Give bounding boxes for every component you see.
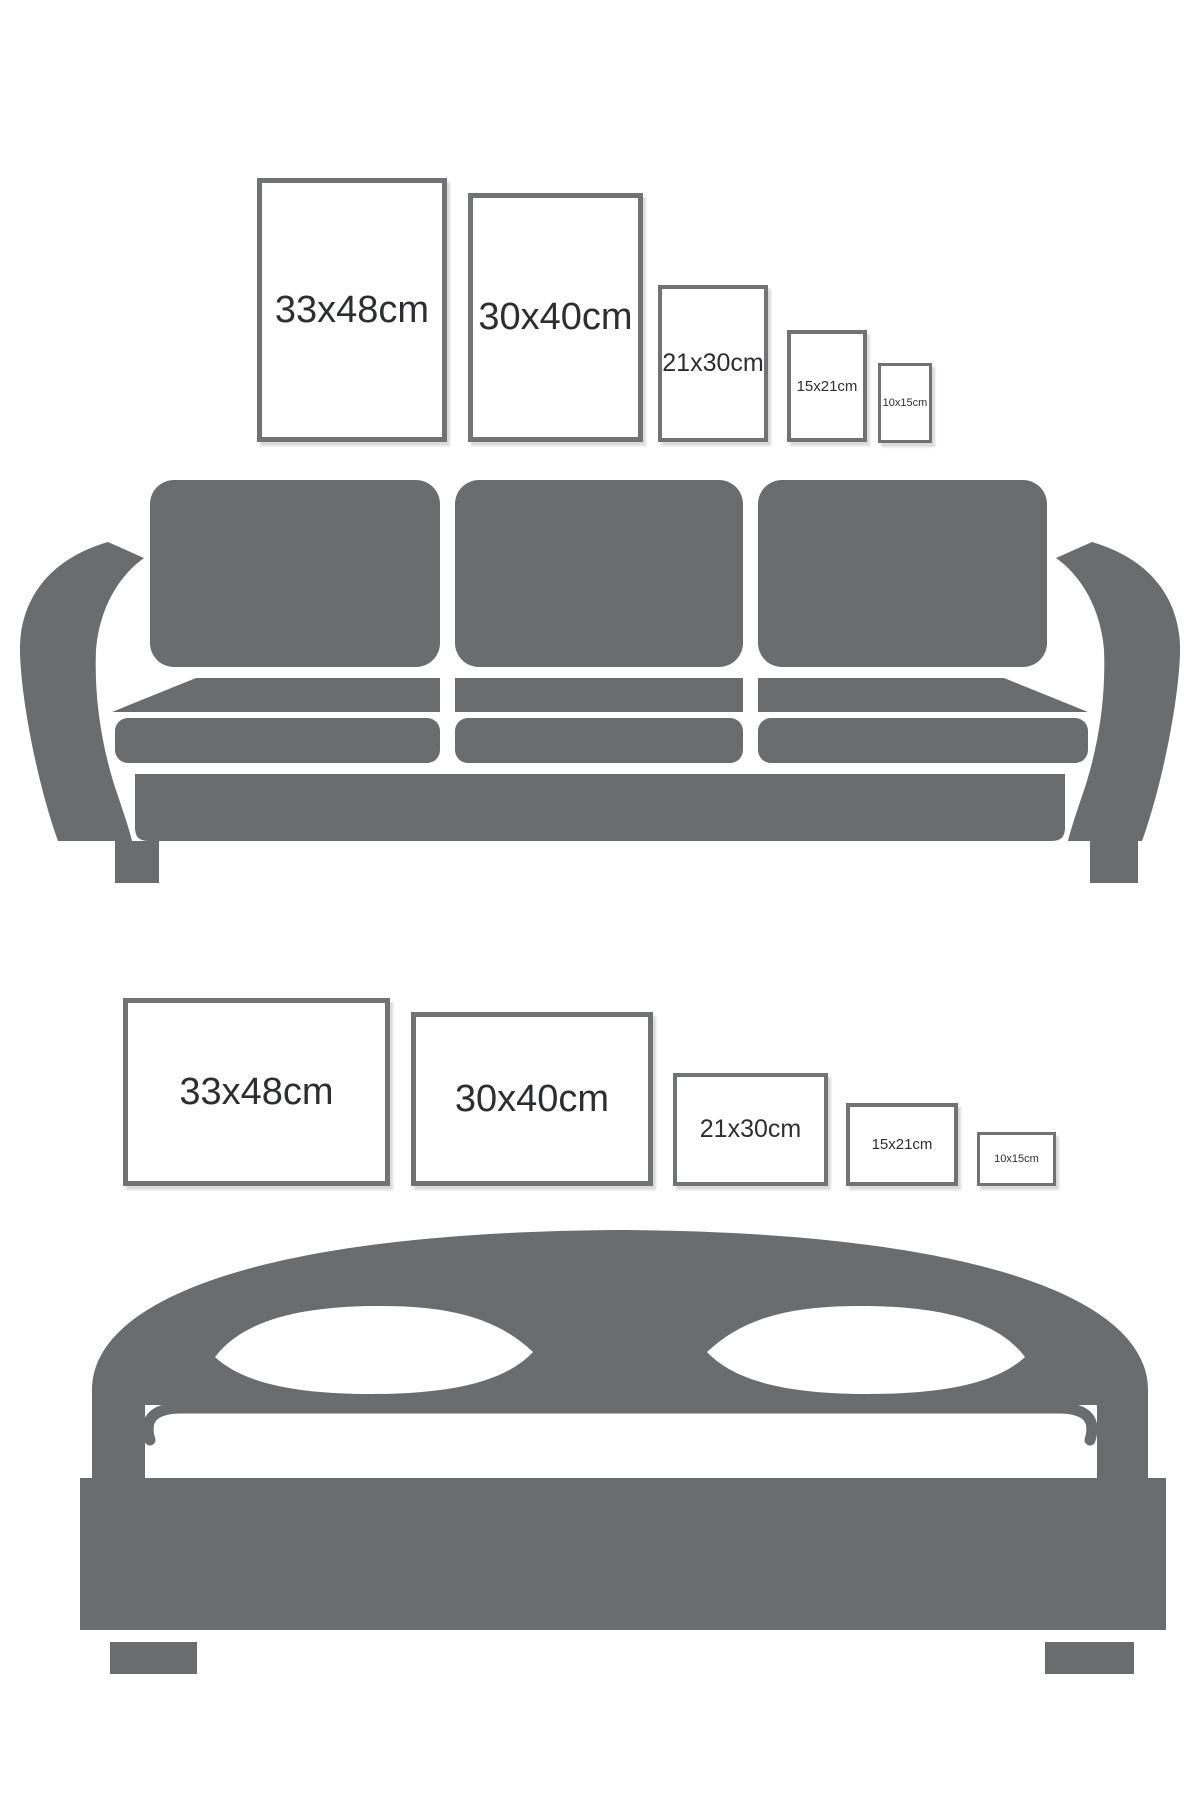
bed-foot-right: [1045, 1642, 1134, 1674]
bed-mattress-line: [148, 1408, 1092, 1440]
frame-size-label: 30x40cm: [478, 296, 632, 339]
sofa-back-cushion-right: [758, 480, 1047, 667]
frame-size-label: 33x48cm: [179, 1071, 333, 1114]
frame-size-label: 30x40cm: [455, 1078, 609, 1121]
frame-size-label: 33x48cm: [275, 289, 429, 332]
sofa-armrest-left: [20, 542, 144, 841]
sofa-back-cushion-middle: [455, 480, 743, 667]
frame-size-label: 21x30cm: [700, 1115, 801, 1144]
sofa-seat-cushion-left: [115, 718, 440, 763]
sofa-seat-cushion-right: [758, 718, 1088, 763]
sofa-back-cushion-left: [150, 480, 440, 667]
sofa-foot-left: [115, 841, 159, 883]
sofa-armrest-right: [1056, 542, 1180, 841]
sofa-foot-right: [1090, 841, 1138, 883]
sofa-deck-right: [758, 678, 1088, 712]
frame-size-label: 15x21cm: [797, 378, 858, 395]
size-guide-infographic: 33x48cm 30x40cm 21x30cm 15x21cm 10x15cm: [0, 0, 1200, 1800]
sofa-deck-left: [112, 678, 440, 712]
sofa-seat-cushion-middle: [455, 718, 743, 763]
bed-base: [80, 1478, 1166, 1630]
sofa-base: [135, 774, 1065, 841]
bed-foot-left: [110, 1642, 197, 1674]
bed-icon: [0, 1150, 1200, 1710]
sofa-icon: [0, 400, 1200, 900]
frame-size-label: 21x30cm: [662, 349, 763, 378]
sofa-deck-middle: [455, 678, 743, 712]
